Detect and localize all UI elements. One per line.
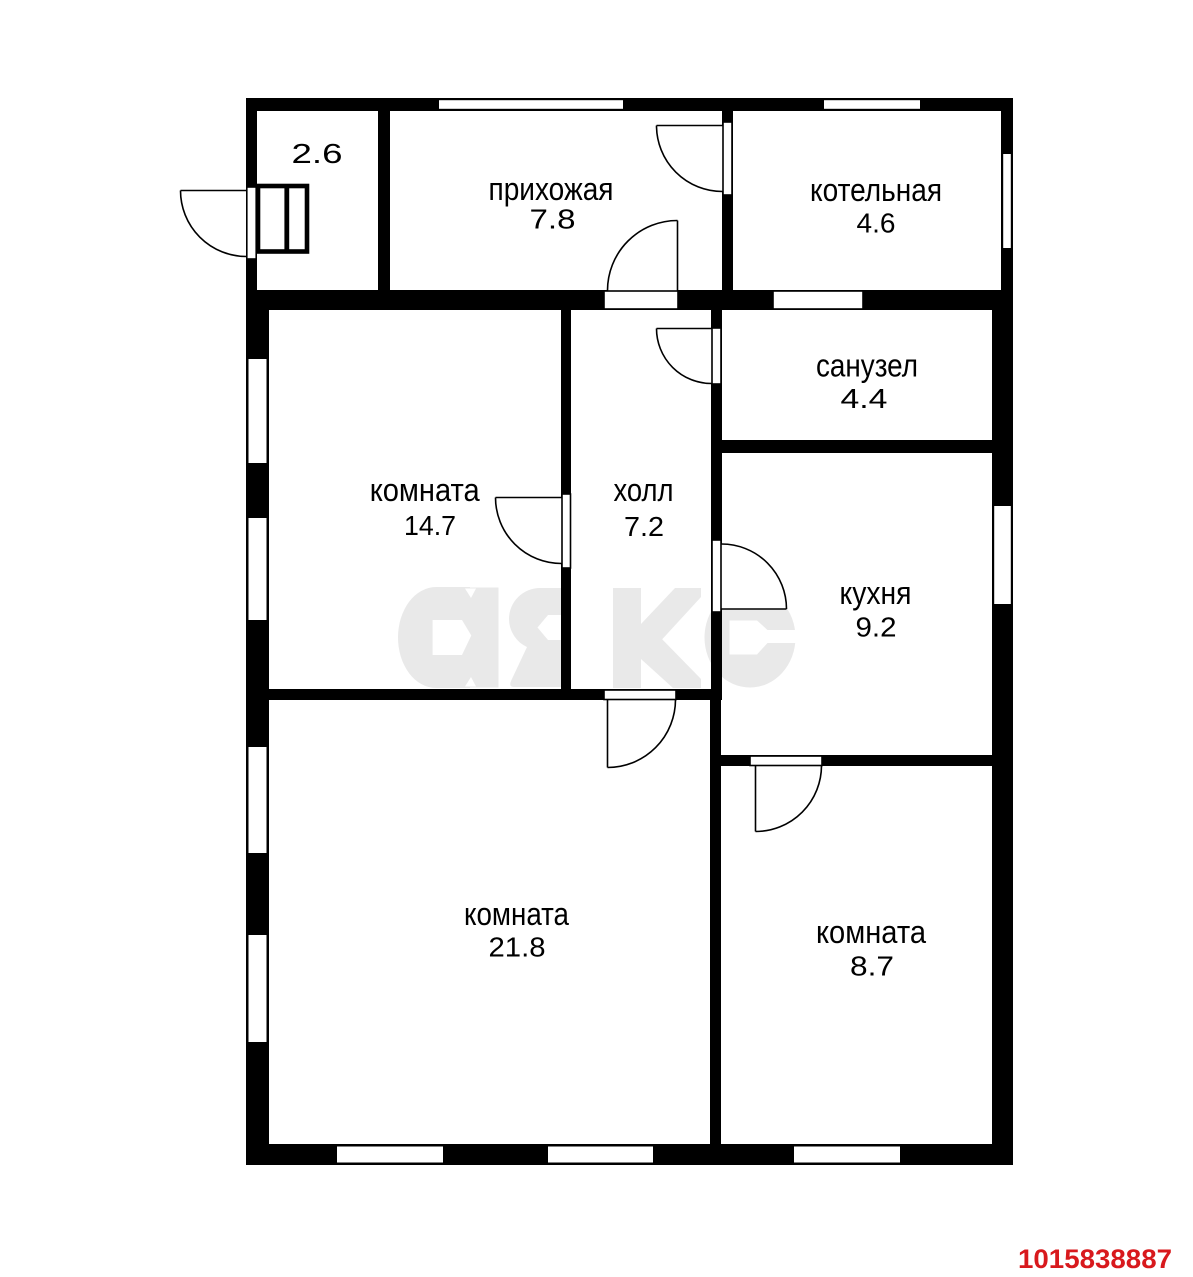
svg-text:4.6: 4.6 [857,208,896,239]
svg-text:7.2: 7.2 [624,511,664,542]
svg-text:21.8: 21.8 [489,932,546,963]
svg-text:комната: комната [464,896,569,932]
svg-text:комната: комната [816,914,926,950]
svg-text:санузел: санузел [816,348,918,384]
svg-text:прихожая: прихожая [489,171,614,207]
svg-text:холл: холл [614,472,674,508]
svg-text:котельная: котельная [810,172,942,208]
svg-text:кухня: кухня [840,575,912,611]
svg-text:9.2: 9.2 [856,612,897,643]
svg-text:8.7: 8.7 [850,951,894,982]
svg-text:комната: комната [370,472,480,508]
svg-text:2.6: 2.6 [292,138,343,169]
svg-text:14.7: 14.7 [404,510,456,541]
svg-text:7.8: 7.8 [530,204,576,235]
svg-text:4.4: 4.4 [841,383,888,414]
svg-text:1015838887: 1015838887 [1018,1244,1172,1274]
